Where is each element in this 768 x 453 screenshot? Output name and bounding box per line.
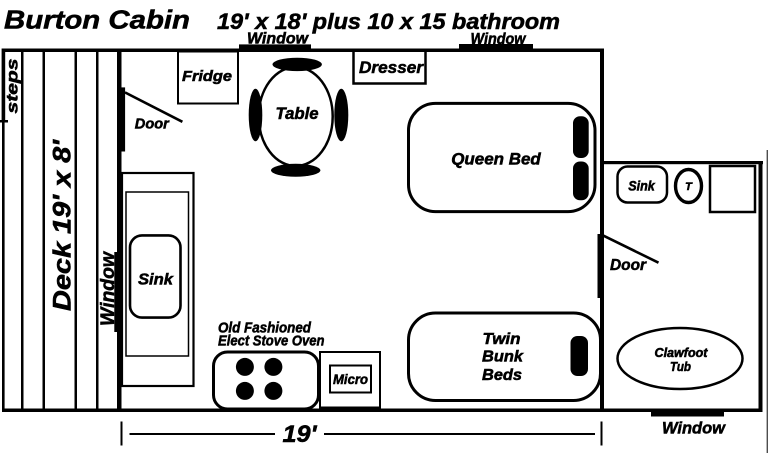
svg-text:Table: Table — [276, 105, 319, 123]
svg-text:Tub: Tub — [670, 360, 691, 374]
svg-text:Beds: Beds — [482, 367, 522, 384]
svg-text:19': 19' — [283, 421, 318, 448]
svg-text:Elect Stove Oven: Elect Stove Oven — [218, 333, 325, 350]
svg-text:Door: Door — [135, 116, 170, 133]
svg-text:Bunk: Bunk — [482, 349, 524, 366]
svg-text:steps: steps — [5, 58, 22, 113]
svg-text:Window: Window — [471, 31, 527, 48]
svg-text:Sink: Sink — [628, 179, 656, 194]
svg-text:Micro: Micro — [333, 371, 368, 387]
svg-text:Twin: Twin — [483, 331, 521, 348]
svg-text:Sink: Sink — [138, 272, 174, 289]
svg-text:Window: Window — [662, 419, 727, 438]
svg-text:Clawfoot: Clawfoot — [655, 346, 709, 360]
svg-text:Deck 19' x 8': Deck 19' x 8' — [49, 139, 77, 311]
svg-text:Window: Window — [97, 250, 119, 326]
svg-text:Fridge: Fridge — [182, 68, 232, 85]
svg-text:Door: Door — [610, 257, 647, 274]
svg-text:Window: Window — [247, 31, 309, 48]
svg-text:Burton Cabin: Burton Cabin — [4, 5, 190, 35]
svg-text:Dresser: Dresser — [359, 58, 424, 77]
svg-text:Queen Bed: Queen Bed — [451, 150, 541, 169]
